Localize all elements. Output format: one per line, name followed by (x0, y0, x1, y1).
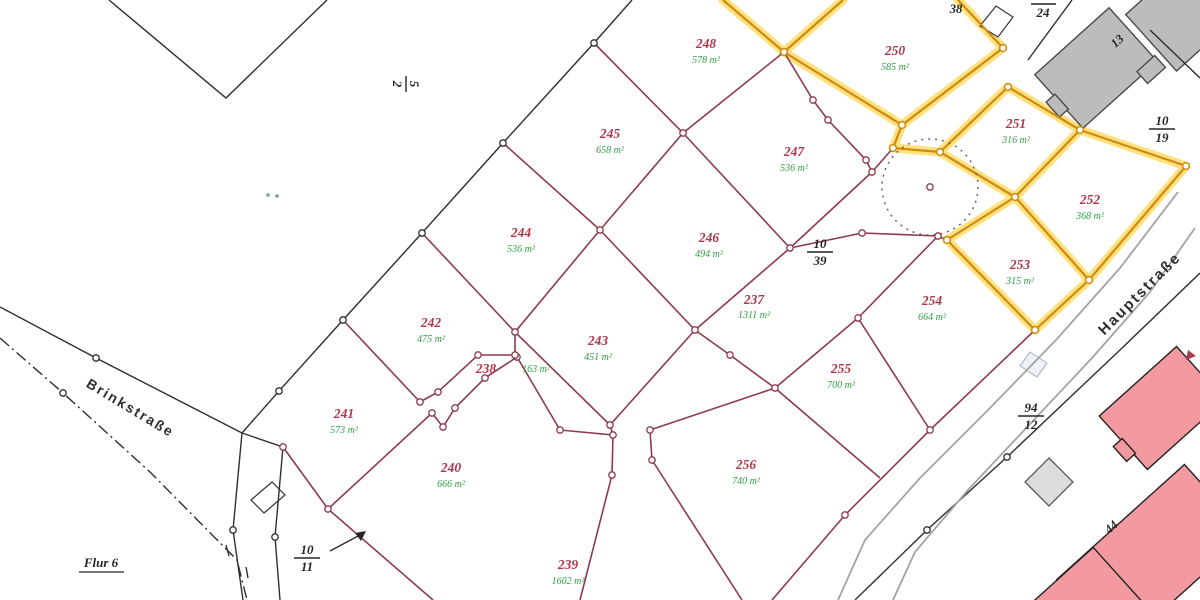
svg-text:10: 10 (1156, 113, 1170, 128)
house-number-38: 38 (949, 2, 963, 16)
road-tick-mark (1186, 350, 1196, 360)
svg-text:254: 254 (921, 293, 943, 308)
parcel-label-242: 242475 m² (417, 315, 446, 345)
svg-text:253: 253 (1009, 257, 1031, 272)
svg-text:536 m²: 536 m² (780, 163, 809, 174)
svg-text:666 m²: 666 m² (437, 479, 466, 490)
svg-text:536 m²: 536 m² (507, 244, 536, 255)
small-gray-building (1025, 458, 1073, 506)
buildings (251, 0, 1200, 600)
parcel-label-243: 243451 m² (584, 333, 613, 363)
fraction-5-2: 5 2 (390, 76, 422, 92)
svg-text:240: 240 (440, 460, 462, 475)
parcel-label-252: 252368 m² (1075, 192, 1105, 222)
svg-text:94: 94 (1025, 400, 1039, 415)
svg-text:Brinkstraße: Brinkstraße (84, 375, 178, 440)
svg-text:740 m²: 740 m² (732, 476, 761, 487)
svg-text:1602 m²: 1602 m² (552, 576, 586, 587)
boundary-vertices (60, 40, 1190, 540)
svg-text:700 m²: 700 m² (827, 380, 856, 391)
parcel-label-247: 247536 m² (780, 144, 809, 174)
svg-text:256: 256 (735, 457, 757, 472)
parcel-label-251: 251316 m² (1001, 116, 1031, 146)
map-canvas: 2371311 m² 238163 m² 2391602 m² 240666 m… (0, 0, 1200, 600)
svg-text:10: 10 (301, 542, 315, 557)
svg-text:573 m²: 573 m² (330, 425, 359, 436)
svg-text:243: 243 (587, 333, 609, 348)
svg-text:2: 2 (390, 80, 405, 88)
svg-text:658 m²: 658 m² (596, 145, 625, 156)
svg-text:19: 19 (1156, 130, 1170, 145)
svg-text:39: 39 (813, 253, 828, 268)
parcel-label-237: 2371311 m² (738, 292, 771, 321)
svg-text:237: 237 (743, 292, 766, 307)
svg-text:252: 252 (1079, 192, 1101, 207)
fraction-94-12: 94 12 (1018, 400, 1044, 432)
svg-text:12: 12 (1025, 417, 1039, 432)
fraction-10-11: 10 11 (294, 531, 366, 574)
svg-text:251: 251 (1005, 116, 1026, 131)
parcel-label-253: 253315 m² (1005, 257, 1035, 287)
svg-text:11: 11 (301, 559, 313, 574)
svg-text:5: 5 (407, 81, 422, 88)
fraction-10-39: 10 39 (807, 236, 833, 268)
survey-point (927, 184, 933, 190)
svg-text:24: 24 (1036, 5, 1051, 20)
svg-text:163 m²: 163 m² (522, 364, 551, 375)
parcel-label-239: 2391602 m² (552, 557, 586, 587)
parcel-label-248: 248578 m² (692, 36, 721, 66)
svg-text:664 m²: 664 m² (918, 312, 947, 323)
flur-label: Flur 6 (79, 555, 124, 572)
svg-text:315 m²: 315 m² (1005, 276, 1035, 287)
svg-text:10: 10 (814, 236, 828, 251)
parcel-label-250: 250585 m² (881, 43, 910, 73)
parcel-label-245: 245658 m² (596, 126, 625, 156)
fraction-arrow (330, 535, 360, 551)
svg-text:578 m²: 578 m² (692, 55, 721, 66)
svg-text:244: 244 (510, 225, 532, 240)
svg-text:245: 245 (599, 126, 621, 141)
map-labels: 38 24 13 5 2 10 19 10 39 94 12 (79, 2, 1185, 574)
fraction-10-19: 10 19 (1149, 113, 1175, 145)
parcel-label-254: 254664 m² (918, 293, 947, 323)
brinkstrasse-lower-edge (0, 338, 247, 600)
svg-text:Flur 6: Flur 6 (83, 555, 119, 570)
svg-text:494 m²: 494 m² (695, 249, 724, 260)
svg-text:475 m²: 475 m² (417, 334, 446, 345)
parcel-label-240: 240666 m² (437, 460, 466, 490)
svg-text:242: 242 (420, 315, 442, 330)
svg-text:316 m²: 316 m² (1001, 135, 1031, 146)
cadastral-map: 2371311 m² 238163 m² 2391602 m² 240666 m… (0, 0, 1200, 600)
parcel-label-256: 256740 m² (732, 457, 761, 487)
svg-text:451 m²: 451 m² (584, 352, 613, 363)
svg-text:368 m²: 368 m² (1075, 211, 1105, 222)
parcel-label-238: 238163 m² (475, 361, 551, 376)
parcel-label-241: 241573 m² (330, 406, 359, 436)
svg-text:241: 241 (333, 406, 354, 421)
svg-text:250: 250 (884, 43, 906, 58)
svg-text:247: 247 (783, 144, 806, 159)
svg-text:239: 239 (557, 557, 579, 572)
svg-text:585 m²: 585 m² (881, 62, 910, 73)
fraction-24: 24 (1031, 4, 1056, 20)
svg-text:255: 255 (830, 361, 852, 376)
street-label-brinkstrasse: Brinkstraße (84, 375, 178, 440)
svg-text:246: 246 (698, 230, 720, 245)
pink-building-1 (1092, 346, 1200, 476)
vegetation-dots (266, 193, 279, 198)
svg-text:238: 238 (475, 361, 497, 376)
parcel-label-255: 255700 m² (827, 361, 856, 391)
svg-text:248: 248 (695, 36, 717, 51)
parcel-label-244: 244536 m² (507, 225, 536, 255)
parcel-label-246: 246494 m² (695, 230, 724, 260)
svg-text:1311 m²: 1311 m² (738, 310, 771, 321)
